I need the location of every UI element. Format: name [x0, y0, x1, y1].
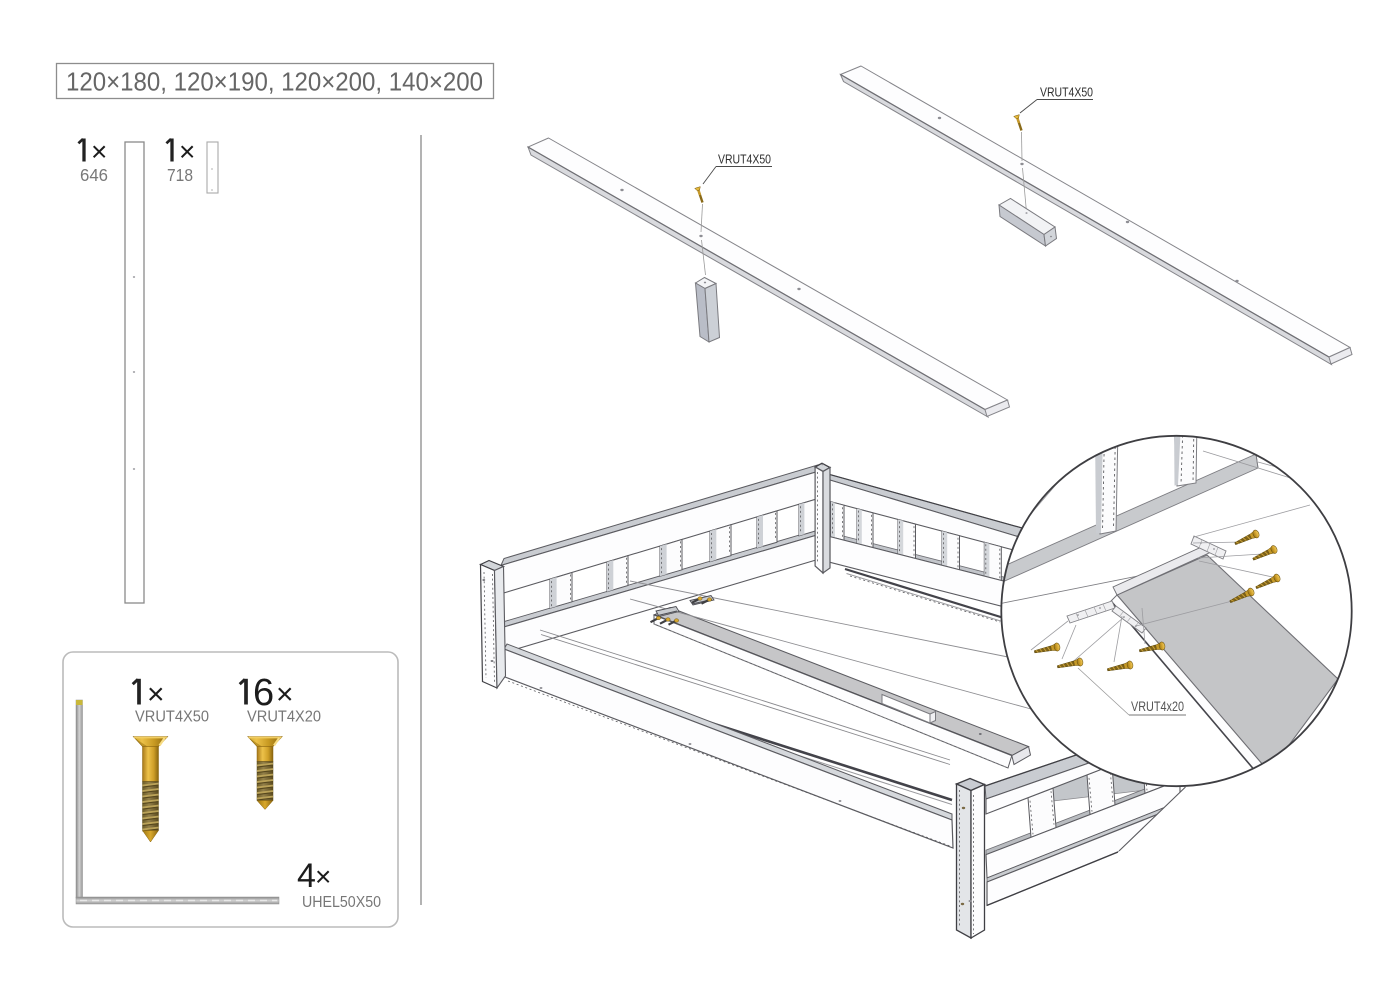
- svg-text:VRUT4X50: VRUT4X50: [135, 709, 209, 726]
- svg-text:4: 4: [297, 857, 316, 895]
- svg-text:×: ×: [276, 678, 294, 711]
- svg-text:120×180, 120×190, 120×200, 140: 120×180, 120×190, 120×200, 140×200: [66, 67, 483, 97]
- svg-text:×: ×: [91, 136, 107, 167]
- svg-text:×: ×: [179, 136, 195, 167]
- svg-text:×: ×: [147, 678, 165, 711]
- svg-text:×: ×: [315, 861, 331, 892]
- svg-text:718: 718: [167, 165, 193, 185]
- svg-text:UHEL50X50: UHEL50X50: [302, 894, 381, 911]
- svg-text:VRUT4X20: VRUT4X20: [247, 709, 321, 726]
- svg-text:646: 646: [80, 165, 108, 185]
- svg-text:VRUT4X50: VRUT4X50: [718, 152, 771, 167]
- svg-text:VRUT4x20: VRUT4x20: [1131, 698, 1184, 714]
- svg-text:VRUT4X50: VRUT4X50: [1040, 85, 1093, 100]
